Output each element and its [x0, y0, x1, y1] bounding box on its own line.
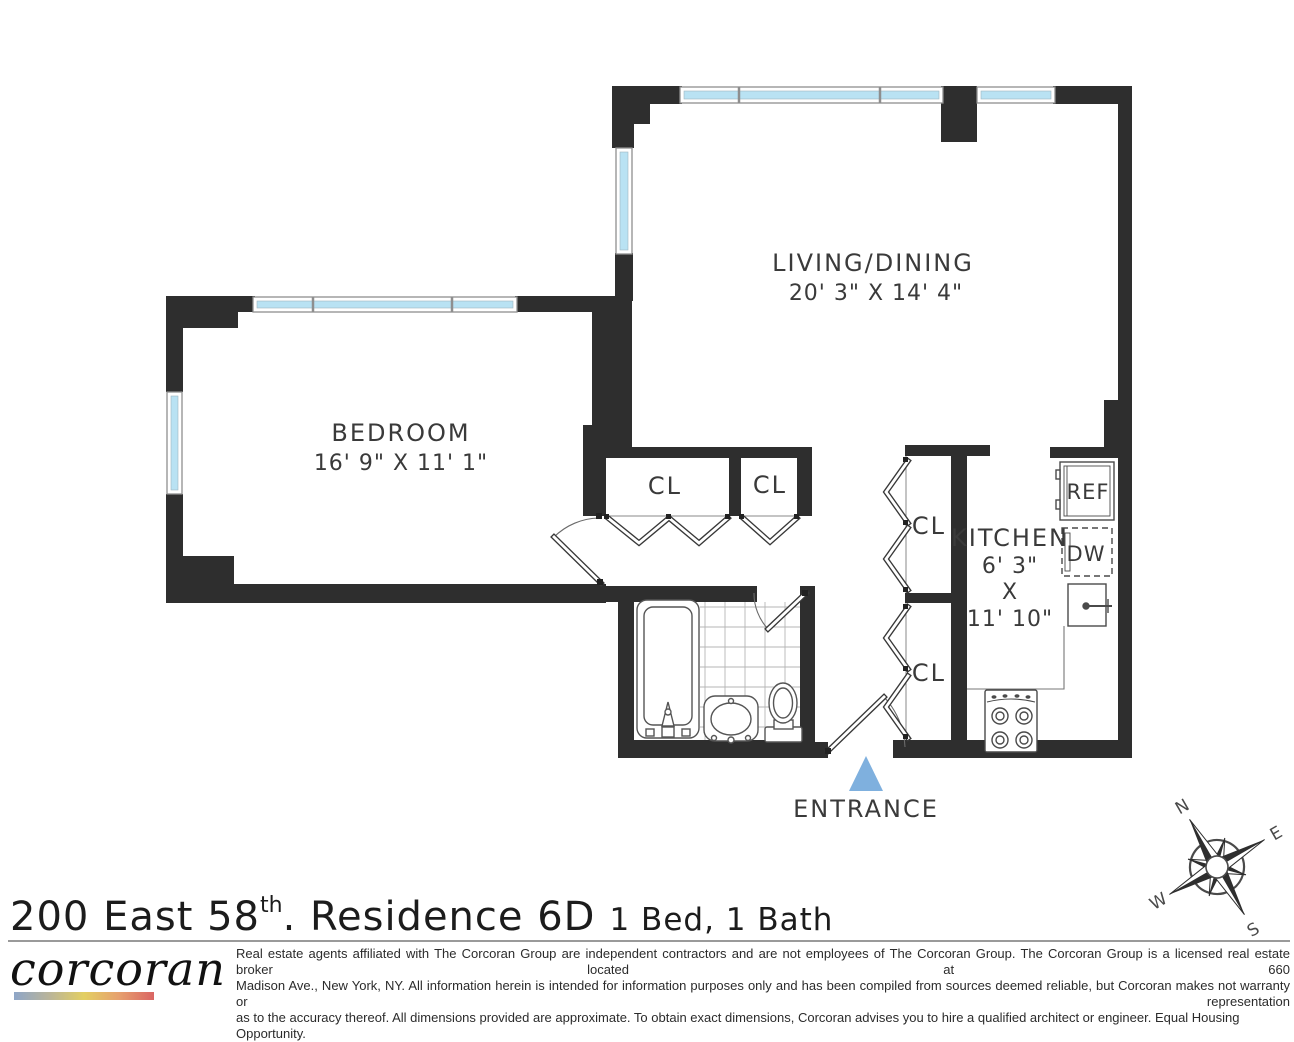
compass-w: W [1146, 889, 1171, 915]
kitchen-dim-w: 6' 3" [982, 554, 1038, 579]
floor-plan: LIVING/DINING 20' 3" X 14' 4" BEDROOM 16… [0, 0, 1294, 1000]
compass-rose-icon: N E S W [1111, 762, 1294, 977]
counter-edge [967, 626, 1064, 689]
compass-s: S [1244, 919, 1263, 942]
wall [583, 425, 632, 458]
stove [985, 690, 1037, 752]
wall-pier [1104, 400, 1120, 448]
living-room-dims: 20' 3" X 14' 4" [789, 281, 963, 306]
title-superscript: th [260, 893, 283, 918]
kitchen-label: KITCHEN [951, 524, 1069, 552]
title-beds-baths: 1 Bed, 1 Bath [609, 902, 833, 938]
wall-kitchen-left [951, 455, 967, 742]
dishwasher-label: DW [1067, 542, 1106, 566]
wall [515, 296, 612, 312]
bedroom-door-arc [554, 518, 599, 537]
disclaimer-line: Madison Ave., New York, NY. All informat… [236, 978, 1290, 1010]
window-living-top-2 [977, 87, 1055, 103]
entrance-marker: ENTRANCE [793, 756, 939, 823]
kitchen-sink [1068, 584, 1112, 626]
wall-column [941, 86, 977, 142]
wall [630, 447, 812, 458]
wall [166, 296, 183, 392]
closet-label: CL [912, 512, 946, 540]
wall [729, 447, 741, 516]
wall [615, 253, 633, 301]
title-residence: . Residence 6D [283, 894, 596, 940]
kitchen-dim-x: X [1002, 580, 1018, 605]
bathtub [637, 600, 699, 738]
window-living-top-1 [680, 87, 943, 103]
closet-label: CL [753, 471, 787, 499]
toilet [765, 683, 802, 742]
compass-n: N [1172, 795, 1193, 819]
disclaimer-line: as to the accuracy thereof. All dimensio… [236, 1010, 1290, 1042]
window-bedroom-left [167, 392, 182, 494]
wall [797, 447, 812, 516]
wall-right [1118, 86, 1132, 758]
wall-corner [612, 86, 634, 148]
corcoran-rainbow-bar [14, 992, 154, 1000]
closet-label: CL [648, 472, 682, 500]
disclaimer-line: Real estate agents affiliated with The C… [236, 946, 1290, 978]
room-labels: LIVING/DINING 20' 3" X 14' 4" BEDROOM 16… [314, 249, 1110, 687]
closet-label: CL [912, 659, 946, 687]
entrance-label: ENTRANCE [793, 795, 939, 823]
bedroom-label: BEDROOM [331, 419, 470, 447]
sink [704, 696, 758, 743]
corcoran-logo: corcoran [10, 946, 226, 992]
wall [583, 456, 606, 516]
wall [905, 445, 990, 456]
window-bedroom-top [253, 297, 517, 312]
page-title: 200 East 58th. Residence 6D1 Bed, 1 Bath [10, 893, 833, 940]
wall [166, 584, 606, 603]
wall [618, 602, 634, 742]
compass-e: E [1267, 823, 1286, 846]
wall-entry-stub [800, 742, 828, 758]
refrigerator-label: REF [1067, 480, 1110, 504]
wall [905, 593, 951, 603]
wall [1050, 447, 1118, 458]
bedroom-dims: 16' 9" X 11' 1" [314, 451, 488, 476]
entrance-arrow-icon [849, 756, 883, 791]
title-address: 200 East 58 [10, 894, 260, 940]
kitchen-dim-h: 11' 10" [967, 607, 1053, 632]
legal-disclaimer: Real estate agents affiliated with The C… [236, 946, 1290, 1042]
window-living-left [616, 148, 632, 254]
living-room-label: LIVING/DINING [772, 249, 974, 277]
